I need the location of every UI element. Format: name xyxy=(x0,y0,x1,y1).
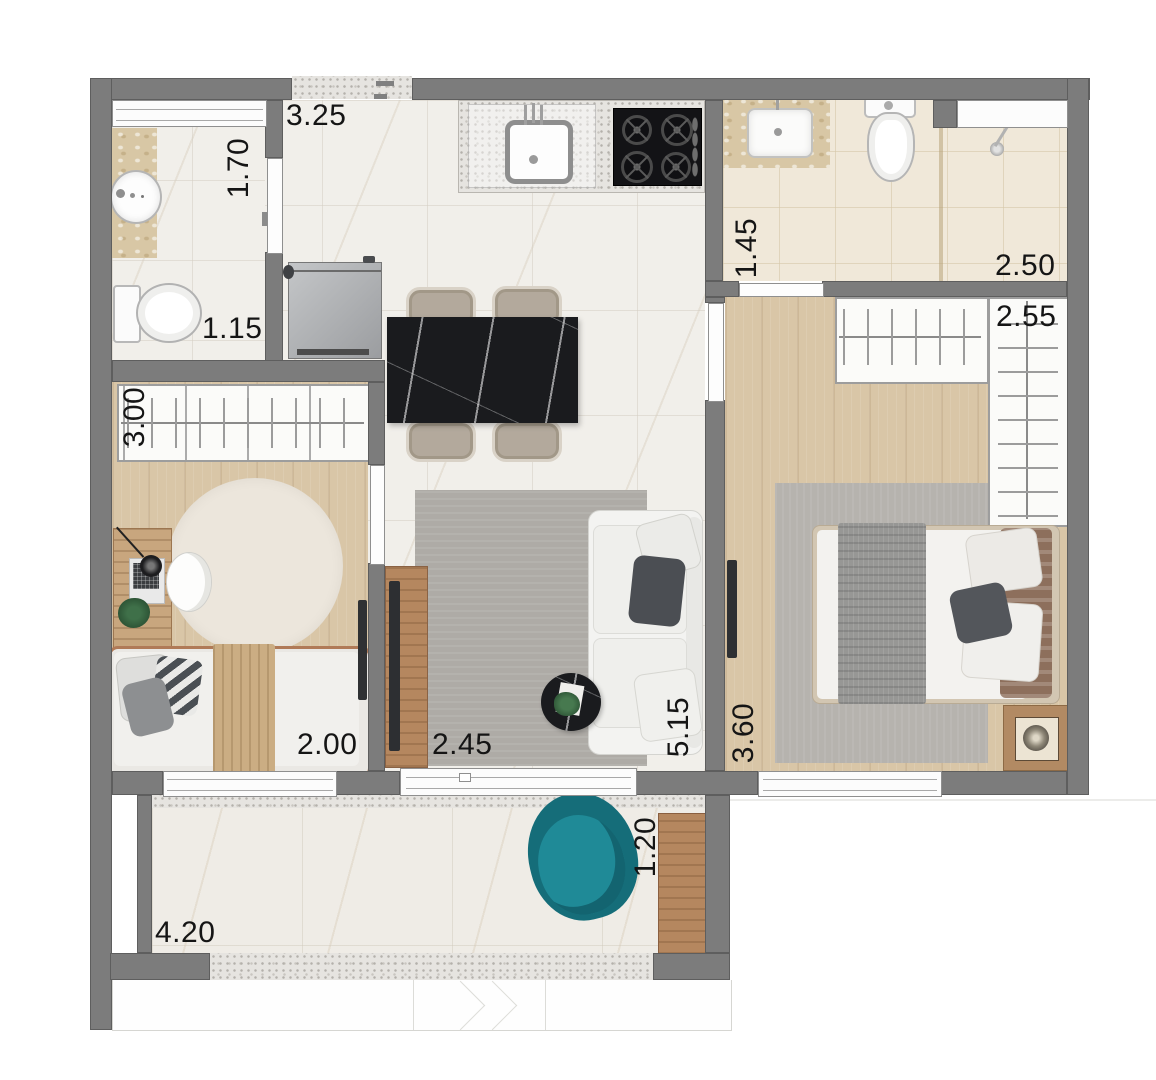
double-bed-pillow-dark xyxy=(948,581,1014,645)
dim-bathroom2-depth: 2.50 xyxy=(995,249,1055,283)
bedroom2-door xyxy=(370,465,385,565)
desk-chair-icon xyxy=(166,552,212,612)
balcony-bench xyxy=(658,813,707,955)
bathroom2-bottom-wall xyxy=(822,281,1067,297)
nightstand-lamp-icon xyxy=(1023,725,1049,751)
cooktop-knobs-icon xyxy=(692,117,698,177)
bedroom1-window xyxy=(758,771,942,797)
kitchen-bathroom2-wall xyxy=(705,100,723,281)
bottom-wall-seg xyxy=(940,771,1067,795)
glass-lines-icon xyxy=(116,109,263,121)
sofa-pillow-dark xyxy=(628,554,687,627)
railing-chevron-icon xyxy=(468,981,517,1030)
entry-door-handle-icon xyxy=(376,81,394,86)
wardrobe-hangers-icon xyxy=(843,309,979,365)
bedroom1-wardrobe-top xyxy=(835,297,989,384)
slider-handle-icon xyxy=(459,773,471,782)
bathroom2-toilet-bowl-icon xyxy=(867,112,915,182)
bedroom2-wall xyxy=(368,382,385,465)
living-tv-icon xyxy=(389,581,400,751)
double-bed-blanket xyxy=(838,523,926,704)
bedroom1-tv-icon xyxy=(727,560,737,658)
burner-icon xyxy=(622,115,652,145)
dim-wardrobe: 2.55 xyxy=(996,300,1056,334)
floor-plan: 3.25 1.70 1.15 1.45 2.50 2.55 3.00 2.00 … xyxy=(0,0,1156,1080)
dining-table xyxy=(387,317,578,423)
balcony-inner-left-wall xyxy=(137,795,152,953)
bathroom1-door xyxy=(267,158,283,254)
entry-threshold xyxy=(292,76,412,99)
washer-bottom-strip xyxy=(297,349,369,355)
closet-hangers-icon xyxy=(127,398,362,448)
bedroom2-wall xyxy=(368,563,385,771)
closet-top-wall xyxy=(112,360,385,382)
dim-living-width: 2.45 xyxy=(432,728,492,762)
outer-wall-top-left xyxy=(90,78,292,100)
railing-divider xyxy=(413,980,414,1030)
bedroom1-door xyxy=(708,303,724,402)
wardrobe-hangers-icon xyxy=(998,305,1058,517)
dim-bedroom1-depth: 3.60 xyxy=(727,693,761,773)
railing-divider xyxy=(545,980,546,1030)
bathroom2-shower-partition xyxy=(939,128,943,281)
balcony-edge-granite xyxy=(210,953,653,980)
bathroom2-drain-icon xyxy=(774,128,782,136)
dim-bathroom1-depth: 1.70 xyxy=(222,128,256,208)
bathroom1-wall xyxy=(265,252,283,364)
balcony-right-wall xyxy=(705,795,730,953)
bedroom2-window xyxy=(163,771,337,797)
washer-top-rail xyxy=(289,270,381,272)
shower-niche xyxy=(957,100,1068,128)
bedroom2-tv-icon xyxy=(358,600,367,700)
outer-wall-left xyxy=(90,78,112,1030)
bedroom2-closet xyxy=(117,384,370,462)
kitchen-sink-drain-icon xyxy=(529,155,538,164)
bathroom1-toilet-bowl-icon xyxy=(136,283,202,343)
dim-bathroom2-width: 1.45 xyxy=(730,208,764,288)
balcony-block-right xyxy=(653,953,730,980)
plan-shadow-line xyxy=(730,799,1156,801)
washer-handle-icon xyxy=(363,256,375,263)
cooktop-icon xyxy=(613,108,702,186)
window-lines-icon xyxy=(406,777,632,789)
bottom-wall-seg xyxy=(335,771,400,795)
washing-machine-icon xyxy=(288,262,382,359)
bottom-wall-seg xyxy=(635,771,758,795)
coffee-table-plant-icon xyxy=(554,692,580,716)
nightstand xyxy=(1003,705,1069,771)
toilet-flush-button-icon xyxy=(884,101,893,110)
window-lines-icon xyxy=(763,779,938,791)
dim-bathroom1-width: 1.15 xyxy=(202,312,262,346)
dim-bedroom2-width: 2.00 xyxy=(297,728,357,762)
dining-chair xyxy=(406,420,476,462)
dim-closet: 3.00 xyxy=(118,377,152,457)
bottom-wall-seg xyxy=(112,771,163,795)
bathroom1-wall xyxy=(265,100,283,158)
outer-wall-top-right xyxy=(412,78,1090,100)
balcony-railing xyxy=(112,980,732,1031)
dim-entry-hall: 3.25 xyxy=(286,99,346,133)
bathroom1-shower-glass xyxy=(112,100,267,127)
balcony-block-left xyxy=(110,953,210,980)
kitchen-sink-icon xyxy=(505,120,573,184)
entry-door-handle-icon xyxy=(374,94,387,99)
washer-knob-icon xyxy=(283,265,294,279)
bathroom1-faucet-icon xyxy=(116,189,125,198)
dining-chair xyxy=(492,420,562,462)
window-lines-icon xyxy=(167,779,332,791)
kitchen-faucet-icon xyxy=(532,103,535,123)
dim-living-depth: 5.15 xyxy=(662,687,696,767)
balcony-sliding-door xyxy=(400,768,637,796)
bedroom1-wall xyxy=(705,400,725,771)
bathroom1-door-handle-icon xyxy=(262,212,267,226)
single-bed-blanket xyxy=(213,644,275,774)
outer-wall-right xyxy=(1067,78,1089,795)
burner-icon xyxy=(621,151,653,183)
dim-balcony-width: 4.20 xyxy=(155,916,215,950)
dim-balcony-depth: 1.20 xyxy=(629,807,663,887)
burner-icon xyxy=(661,114,693,146)
burner-icon xyxy=(661,152,691,182)
shower-jog-wall xyxy=(933,100,957,128)
desk-lamp-icon xyxy=(140,555,162,577)
